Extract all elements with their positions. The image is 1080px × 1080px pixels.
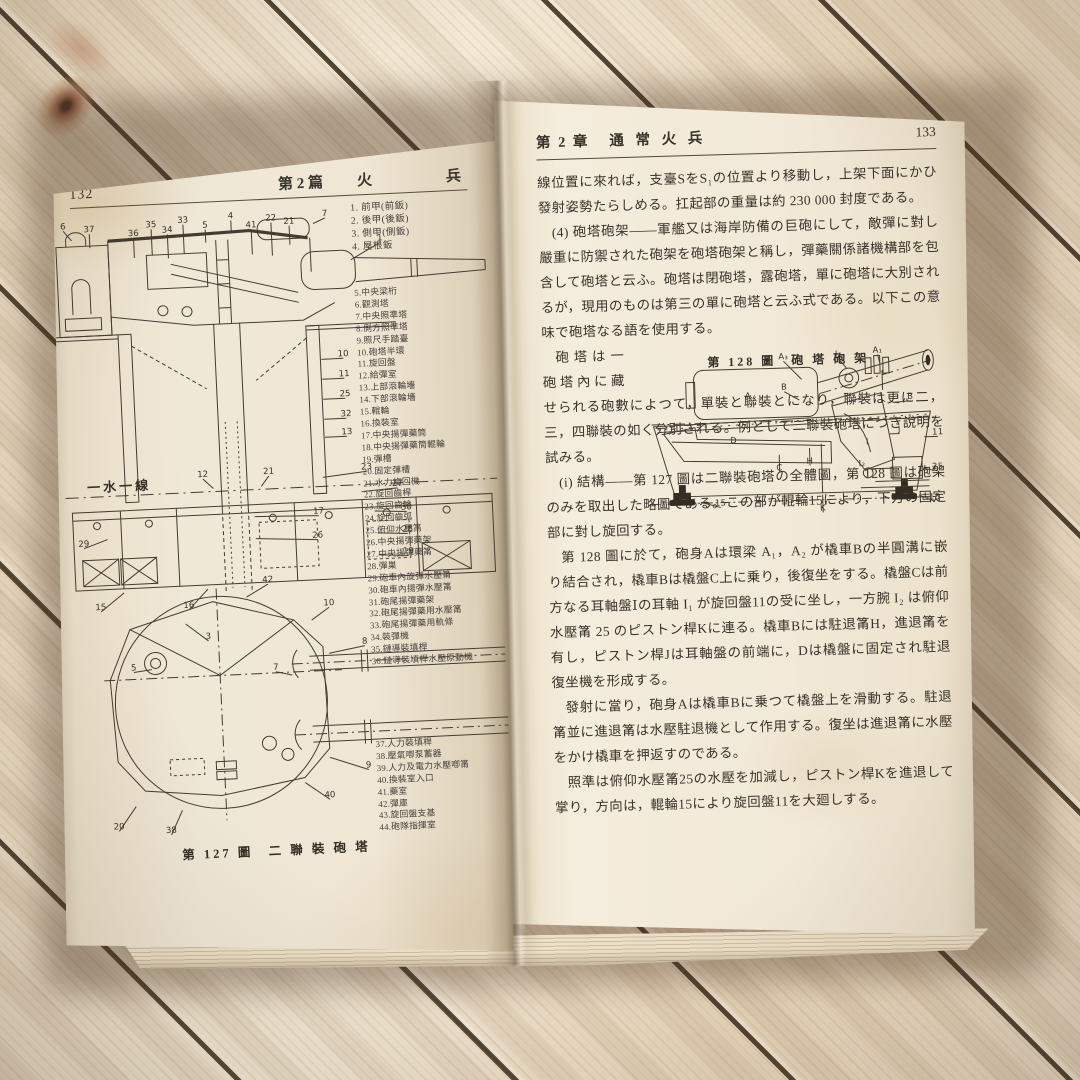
figure-label: 9 <box>366 760 372 770</box>
figure-label: 11 <box>338 369 349 380</box>
carriage-drawing <box>646 350 938 507</box>
figure-label: 12 <box>197 470 208 481</box>
right-page-header: 第 2 章 通 常 火 兵 133 <box>536 120 937 161</box>
figure-label: 33 <box>177 215 188 226</box>
figure-leader-line <box>231 220 232 233</box>
paragraph: (4) 砲塔砲架——軍艦又は海岸防備の巨砲にして，敵彈に對し嚴重に防禦された砲架… <box>538 209 941 345</box>
figure-leader-line <box>838 358 846 368</box>
figure-leader-line <box>246 584 269 597</box>
figure-label: 15 <box>929 491 941 501</box>
figure-label: 13 <box>341 427 352 438</box>
figure-leader-line <box>63 231 71 241</box>
figure-label: 7 <box>322 209 328 219</box>
figure-label: B <box>907 391 913 401</box>
page-right: 第 2 章 通 常 火 兵 133 線位置に來れば，支臺SをS₁の位置より移動し… <box>494 77 982 945</box>
figure-label: I₁ <box>835 349 842 359</box>
figure-leader-line <box>251 229 252 254</box>
paragraph: 照準は俯仰水壓筩25の水壓を加減し，ピストン桿Kを進退して掌り，方向は，輥輪15… <box>554 759 955 820</box>
figure-label: 15 <box>95 603 106 614</box>
figure-label: 38 <box>166 826 177 837</box>
parts-list-group: 5.中央梁桁6.觀測塔7.中央照準塔8.側方照準塔9.照尺手踏臺10.砲塔半環1… <box>354 281 514 668</box>
figure-leader-line <box>289 226 290 245</box>
figure-leader-line <box>784 391 799 400</box>
figure-label: 40 <box>324 790 335 801</box>
parts-list-group: 1. 前甲(前鈑)2. 後甲(後鈑)3. 側甲(側鈑)4. 屋根鈑 <box>350 195 494 254</box>
figure-label: 21 <box>263 467 274 478</box>
figure-label: 16 <box>183 601 194 612</box>
figure-label: 42 <box>262 575 273 586</box>
figure-label: A₃ <box>778 351 788 361</box>
figure-label: H <box>806 456 813 466</box>
figure-label: C <box>776 462 783 472</box>
figure-leader-line <box>783 361 801 380</box>
figure-label: 41 <box>245 220 256 231</box>
figure-label: 34 <box>161 225 172 236</box>
figure-leader-line <box>895 401 911 402</box>
figure-label: B <box>781 382 787 392</box>
running-title: 第 2 篇火兵 <box>278 164 468 194</box>
figure-label: 一水一線 <box>87 477 152 495</box>
figure-leader-line <box>323 471 367 477</box>
figure-label: I <box>866 436 869 446</box>
page-number: 133 <box>915 124 936 141</box>
figure-leader-line <box>256 536 318 543</box>
figure-label: 10 <box>337 349 348 360</box>
figure-label: 20 <box>114 822 125 833</box>
figure-label: 10 <box>323 598 334 609</box>
figure-label: 7 <box>273 663 279 673</box>
figure-leader-line <box>329 646 365 654</box>
paragraph: 第 128 圖に於て，砲身Aは環梁 A₁，A₂ が橇車Bの半圓溝に嵌り結合され，… <box>548 534 952 695</box>
figure-label: 29 <box>78 539 89 550</box>
page-left: 132 第 2 篇火兵 <box>50 141 514 960</box>
figure-label: 17 <box>313 506 324 517</box>
figure-label: 25 <box>932 461 944 471</box>
figure-label: 32 <box>340 409 351 420</box>
figure-label: 15 <box>715 497 727 507</box>
paragraph: 發射に當り，砲身Aは橇車Bに乗つて橇盤上を滑動する。駐退筩並に進退筩は水壓駐退機… <box>552 684 954 770</box>
figure-leader-line <box>89 234 90 248</box>
parts-list-group: 37.人力裝填桿38.壓氣喞泵蓄器39.人力及電力水壓喞筩40.換裝室入口41.… <box>375 733 521 835</box>
chapter-title: 通 常 火 兵 <box>609 127 706 151</box>
figure-leader-line <box>261 476 269 486</box>
figure-leader-line <box>151 229 152 255</box>
figure-label: 5 <box>202 221 208 231</box>
figure-label: 36 <box>128 229 139 240</box>
figure-label: A₁ <box>872 344 882 354</box>
figure-leader-line <box>133 238 134 258</box>
figure-leader-line <box>205 230 206 243</box>
figure-label: D <box>730 435 737 445</box>
figure-label: 3 <box>205 632 211 642</box>
body-text: 線位置に來れば，支臺SをS₁の位置より移動し，上架下面にかひ發射姿勢たらしめる。… <box>537 159 956 820</box>
figure-leader-line <box>311 607 330 620</box>
figure-label: 35 <box>145 220 156 231</box>
figure-leader-line <box>330 756 369 772</box>
figure-label: I₂ <box>859 458 866 468</box>
figure-label: 37 <box>83 225 94 236</box>
figure-leader-line <box>183 225 184 254</box>
figure-label: 8 <box>362 636 368 646</box>
chapter-label: 第 2 章 <box>536 130 590 153</box>
figure-label: 5 <box>131 663 137 673</box>
figure-label: 26 <box>312 530 323 541</box>
parts-list: 1. 前甲(前鈑)2. 後甲(後鈑)3. 側甲(側鈑)4. 屋根鈑 5.中央梁桁… <box>350 195 522 834</box>
figure-label: 22 <box>265 213 276 224</box>
open-book: 132 第 2 篇火兵 <box>39 70 1040 992</box>
figure-label: 21 <box>283 216 294 227</box>
figure-leader-line <box>203 479 213 489</box>
figure-leader-line <box>255 514 319 519</box>
figure-label: A <box>745 391 751 401</box>
figure-label: 4 <box>228 211 234 221</box>
figure-label: 6 <box>60 222 66 232</box>
figure-label: 25 <box>339 389 350 400</box>
figure-label: J <box>897 424 901 434</box>
figure-label: K <box>820 502 826 512</box>
figure-label: 11 <box>932 426 944 436</box>
